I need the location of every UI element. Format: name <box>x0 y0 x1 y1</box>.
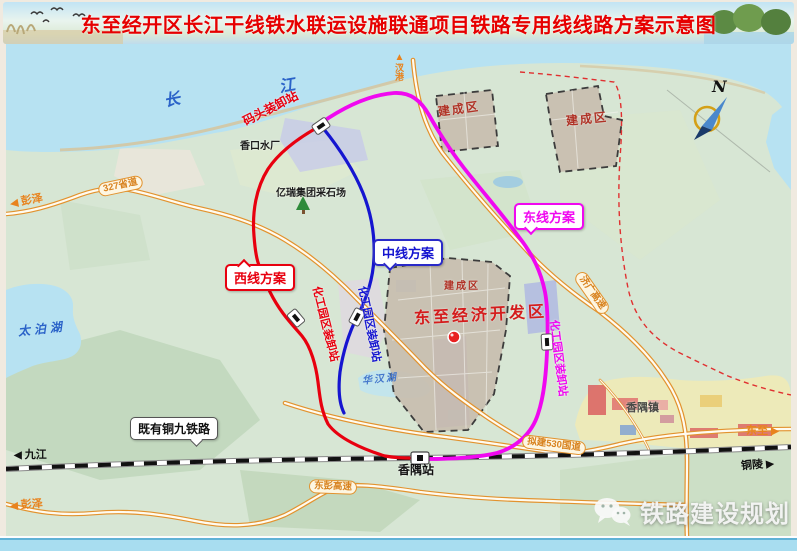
watermark-label: 铁路建设规划 <box>640 494 790 529</box>
tongling-label: 铜陵 <box>741 459 764 473</box>
pond <box>493 176 523 188</box>
xiangyu-town-label: 香隅镇 <box>626 402 659 414</box>
pengze-label: 彭泽 <box>20 498 43 512</box>
wechat-icon <box>594 497 632 527</box>
direction-dongzhi: 东至 ▶ <box>746 422 779 438</box>
existing-railway-label: 既有铜九铁路 <box>138 420 210 437</box>
right-arrow-icon: ▶ <box>771 426 779 437</box>
bottom-border-strip <box>0 536 797 551</box>
built-up-area-3-label: 建成区 <box>444 281 480 292</box>
dongzhi-label: 东至 <box>746 425 768 437</box>
dev-zone-pin <box>448 331 460 343</box>
route-map: 长 江 太泊湖 华汉湖 码头装卸站 化工园区装卸站 化工园区装卸站 化工园区装卸… <box>6 44 791 538</box>
chagang-label: 汊港 <box>393 63 406 81</box>
river-label-chang: 长 <box>163 90 182 110</box>
banner-trees-art <box>704 2 794 44</box>
xiangyu-station-label: 香隅站 <box>398 464 434 477</box>
jiujiang-label: 九江 <box>25 449 47 461</box>
left-arrow-icon: ◀ <box>10 501 18 513</box>
water-plant-label: 香口水厂 <box>240 141 280 152</box>
dongpeng-expwy-badge: 东彭高速 <box>309 479 357 495</box>
watermark: 铁路建设规划 <box>594 494 790 529</box>
pengze-label: 彭泽 <box>20 192 44 208</box>
left-arrow-icon: ◀ <box>14 450 22 461</box>
direction-tongling: 铜陵 ▶ <box>740 455 774 474</box>
direction-jiujiang: ◀ 九江 <box>14 446 47 462</box>
compass-n-label: N <box>712 77 727 96</box>
right-arrow-icon: ▶ <box>766 459 775 471</box>
left-arrow-icon: ◀ <box>10 198 19 210</box>
up-arrow-icon: ▲ <box>395 52 405 63</box>
title-banner: 东至经开区长江干线铁水联运设施联通项目铁路专用线线路方案示意图 <box>3 2 794 44</box>
page-title: 东至经开区长江干线铁水联运设施联通项目铁路专用线线路方案示意图 <box>81 9 717 38</box>
direction-chagang: ▲ 汊港 <box>393 52 406 81</box>
direction-pengze-expwy: ◀ 彭泽 <box>9 495 43 513</box>
existing-railway-callout: 既有铜九铁路 <box>130 417 218 440</box>
east-plan-callout: 东线方案 <box>514 203 584 230</box>
west-plan-callout: 西线方案 <box>225 264 295 291</box>
quarry-label: 亿瑞集团采石场 <box>276 188 346 199</box>
schematic-poster: 东至经开区长江干线铁水联运设施联通项目铁路专用线线路方案示意图 <box>0 0 797 551</box>
middle-plan-callout: 中线方案 <box>373 239 443 266</box>
